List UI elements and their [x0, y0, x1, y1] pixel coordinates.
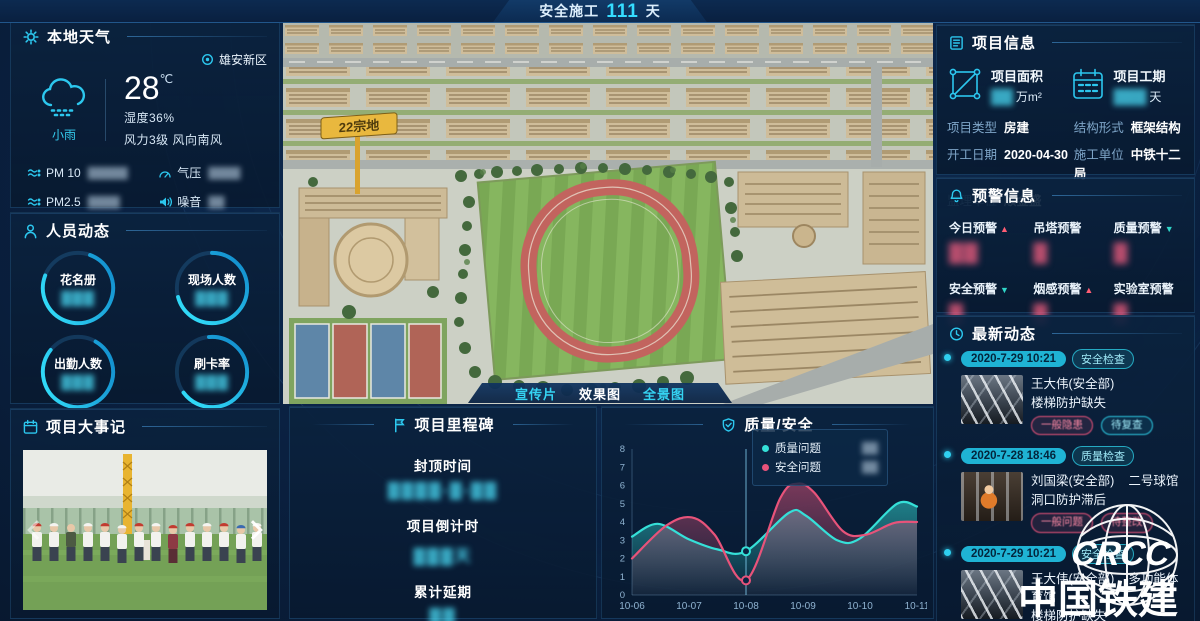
event-photo-carousel[interactable]	[23, 450, 267, 610]
rain-cloud-icon	[38, 77, 90, 119]
news-type-badge: 质量检查	[1072, 446, 1134, 466]
chart-tooltip: 质量问题▓▓ 安全问题▓▓	[752, 429, 888, 486]
trend-arrow-icon: ▼	[1165, 224, 1174, 234]
metric-value: ▓▓▓▓	[208, 167, 240, 179]
svg-text:10-09: 10-09	[790, 601, 816, 612]
panel-project-milestone: 项目里程碑 封顶时间 ▓▓▓▓-▓-▓▓ 项目倒计时 ▓▓▓天 累计延期 ▓▓	[289, 406, 597, 619]
news-issue: 洞口防护滞后	[1031, 491, 1178, 510]
svg-text:3: 3	[620, 535, 625, 546]
header-divider	[126, 230, 267, 231]
issue-level-tag: 一般问题	[1031, 513, 1093, 533]
stat-unit: 万m²	[1016, 90, 1042, 104]
wind: 风力3级 风向南风	[124, 131, 223, 148]
news-person: 刘国梁(安全部)	[1031, 474, 1114, 488]
haze-icon	[27, 167, 41, 179]
ring-label: 现场人数	[188, 271, 236, 288]
panel-quality-safety: 质量/安全 01234567810-0610-0710-0810-0910-10…	[601, 406, 934, 619]
svg-text:10-07: 10-07	[676, 601, 702, 612]
gauge-icon	[158, 167, 172, 179]
metric-label: PM2.5	[46, 195, 81, 209]
milestone-value: ▓▓	[429, 608, 456, 621]
svg-text:1: 1	[620, 572, 625, 583]
metric-label: 气压	[177, 164, 201, 181]
news-date-badge: 2020-7-29 10:21	[961, 546, 1066, 562]
header-line	[312, 424, 374, 425]
stat-ring-attendance: 出勤人数▓▓▓	[38, 332, 118, 412]
news-date-badge: 2020-7-28 18:46	[961, 448, 1066, 464]
news-place: 二号球馆	[1128, 474, 1178, 488]
alert-quality: 质量预警▼▓	[1114, 219, 1190, 264]
location-icon	[201, 53, 214, 66]
news-person: 王大伟(安全部)	[1031, 572, 1114, 586]
svg-text:8: 8	[620, 444, 625, 455]
alert-today: 今日预警▲▓▓	[949, 219, 1033, 264]
safety-days-banner: 安全施工 111 天	[493, 0, 707, 22]
panel-title: 预警信息	[972, 185, 1036, 206]
metric-pm25: PM2.5 ▓▓▓▓	[27, 193, 154, 210]
metric-value: ▓▓▓▓	[88, 196, 120, 208]
weather-metrics: PM 10 ▓▓▓▓▓ 气压 ▓▓▓▓ PM2.5 ▓▓▓▓ 噪音 ▓▓	[27, 164, 269, 210]
panel-title: 本地天气	[47, 26, 111, 47]
crane	[123, 454, 132, 536]
header-divider	[142, 426, 267, 427]
area-icon	[947, 66, 983, 102]
milestone-label: 累计延期	[414, 581, 472, 601]
location-name: 雄安新区	[219, 51, 267, 68]
ring-value: ▓▓▓	[195, 373, 229, 389]
svg-text:7: 7	[620, 462, 625, 473]
clock-icon	[949, 326, 964, 342]
header-line	[624, 424, 703, 425]
svg-text:10-06: 10-06	[619, 601, 645, 612]
field-project-type: 项目类型房建	[947, 117, 1074, 136]
stat-ring-roster: 花名册▓▓▓	[38, 248, 118, 328]
metric-label: 噪音	[177, 193, 201, 210]
metric-value: ▓▓	[208, 196, 224, 208]
bell-icon	[949, 188, 964, 204]
weather-condition: 小雨	[27, 126, 101, 143]
legend-label-quality: 质量问题	[775, 440, 821, 456]
weather-current: 小雨 28℃ 湿度36% 风力3级 风向南风	[27, 72, 273, 148]
temperature-value: 28	[124, 70, 160, 106]
alert-value: ▓	[1033, 242, 1113, 264]
stat-ring-onsite: 现场人数▓▓▓	[172, 248, 252, 328]
tab-promo-video[interactable]: 宣传片	[515, 384, 557, 403]
panel-personnel: 人员动态 花名册▓▓▓ 现场人数▓▓▓ 出勤人数▓▓▓ 刷卡率▓▓▓	[10, 212, 280, 404]
stat-ring-swipe-rate: 刷卡率▓▓▓	[172, 332, 252, 412]
header-divider	[1052, 42, 1182, 43]
document-icon	[949, 35, 964, 51]
panel-title: 项目里程碑	[415, 414, 495, 435]
news-date-badge: 2020-7-29 10:21	[961, 351, 1066, 367]
timeline-dot	[944, 549, 951, 556]
haze-icon	[27, 196, 41, 208]
event-photo	[23, 450, 267, 610]
svg-text:4: 4	[620, 517, 625, 528]
news-type-badge: 安全检查	[1072, 349, 1134, 369]
calendar-icon	[23, 419, 38, 435]
safety-days-label: 安全施工	[539, 1, 599, 21]
panel-title: 项目大事记	[46, 416, 126, 437]
alerts-grid: 今日预警▲▓▓ 吊塔预警▓ 质量预警▼▓ 安全预警▼▓ 烟感预警▲▓ 实验室预警…	[949, 219, 1190, 325]
panel-title: 项目信息	[972, 32, 1036, 53]
news-issue: 楼梯防护缺失	[1031, 394, 1153, 413]
flag-icon	[392, 417, 407, 433]
milestone-value: ▓▓▓▓-▓-▓▓	[388, 482, 498, 500]
stat-value: ▓▓▓	[1114, 88, 1147, 105]
distant-buildings	[283, 22, 933, 67]
project-stats: 项目面积 ▓▓万m² 项目工期 ▓▓▓天	[947, 66, 1186, 105]
sports-field	[478, 162, 732, 380]
field-structure: 结构形式框架结构	[1074, 117, 1184, 136]
temperature-unit: ℃	[160, 72, 173, 86]
land-sign-label: 22宗地	[339, 117, 379, 135]
stat-value: ▓▓	[991, 88, 1013, 105]
shield-check-icon	[721, 417, 736, 433]
status-tag: 待复查	[1101, 416, 1153, 436]
header-line	[513, 424, 575, 425]
hazard-level-tag: 一般隐患	[1031, 416, 1093, 436]
speaker-icon	[158, 196, 172, 208]
news-photo	[961, 375, 1023, 424]
ring-value: ▓▓▓	[195, 289, 229, 305]
news-photo	[961, 570, 1023, 619]
timeline-dot	[944, 451, 951, 458]
sun-icon	[23, 29, 39, 45]
legend-dot-safety	[762, 464, 769, 471]
alert-crane: 吊塔预警▓	[1033, 219, 1113, 264]
legend-dot-quality	[762, 445, 769, 452]
ring-value: ▓▓▓	[61, 289, 95, 305]
trend-arrow-icon: ▼	[1000, 285, 1009, 295]
safety-days-unit: 天	[646, 1, 661, 21]
ring-label: 出勤人数	[54, 355, 102, 372]
trend-arrow-icon: ▲	[1084, 285, 1093, 295]
svg-text:6: 6	[620, 481, 625, 492]
milestone-items: 封顶时间 ▓▓▓▓-▓-▓▓ 项目倒计时 ▓▓▓天 累计延期 ▓▓	[290, 440, 596, 621]
legend-label-safety: 安全问题	[775, 459, 821, 475]
divider	[105, 79, 106, 141]
svg-text:10-10: 10-10	[847, 601, 873, 612]
ring-label: 刷卡率	[194, 355, 230, 372]
stat-project-duration: 项目工期 ▓▓▓天	[1070, 66, 1187, 105]
news-issue: 楼梯防护缺失	[1031, 607, 1186, 621]
metric-label: PM 10	[46, 166, 81, 180]
personnel-rings: 花名册▓▓▓ 现场人数▓▓▓ 出勤人数▓▓▓ 刷卡率▓▓▓	[11, 248, 279, 412]
person-icon	[23, 223, 38, 239]
scene-view-tabs: 宣传片 效果图 全景图	[468, 383, 732, 403]
panel-project-info: 项目信息 项目面积 ▓▓万m²	[936, 24, 1195, 175]
svg-text:2: 2	[620, 554, 625, 565]
panel-alerts: 预警信息 今日预警▲▓▓ 吊塔预警▓ 质量预警▼▓ 安全预警▼▓ 烟感预警▲▓ …	[936, 177, 1195, 313]
stat-label: 项目工期	[1114, 66, 1166, 85]
alert-value: ▓	[1114, 242, 1190, 264]
construction-dashboard: 22宗地 宣传片 效果图 全景图 安全施工 111 天 本地天气 雄安新区	[0, 0, 1200, 621]
header-line	[832, 424, 911, 425]
location-indicator: 雄安新区	[201, 51, 267, 68]
news-type-badge: 安全检查	[1072, 544, 1134, 564]
svg-text:10-08: 10-08	[733, 601, 759, 612]
svg-text:0: 0	[620, 590, 625, 601]
basketball-courts	[289, 318, 447, 404]
milestone-value: ▓▓▓天	[414, 542, 473, 566]
timeline-dot	[944, 354, 951, 361]
svg-text:5: 5	[620, 499, 625, 510]
status-tag: 待整改	[1101, 513, 1153, 533]
svg-text:10-11: 10-11	[905, 601, 927, 612]
tab-panorama[interactable]: 全景图	[643, 384, 685, 403]
alert-value: ▓▓	[949, 242, 1033, 264]
header-divider	[1052, 195, 1182, 196]
panel-title: 最新动态	[972, 323, 1036, 344]
panel-project-events: 项目大事记	[10, 408, 280, 619]
aerial-render-view[interactable]: 22宗地	[283, 22, 933, 404]
calendar-icon	[1070, 66, 1106, 102]
ring-label: 花名册	[60, 271, 96, 288]
stat-project-area: 项目面积 ▓▓万m²	[947, 66, 1064, 105]
milestone-label: 封顶时间	[414, 455, 472, 475]
news-item[interactable]: 2020-7-29 10:21 安全检查 王大伟(安全部)多功能体育馆 楼梯防护…	[937, 544, 1194, 621]
trend-arrow-icon: ▲	[1000, 224, 1009, 234]
news-item[interactable]: 2020-7-28 18:46 质量检查 刘国梁(安全部)二号球馆 洞口防护滞后…	[937, 446, 1194, 543]
header-divider	[127, 36, 267, 37]
milestone-label: 项目倒计时	[407, 515, 480, 535]
metric-pressure: 气压 ▓▓▓▓	[158, 164, 269, 181]
metric-value: ▓▓▓▓▓	[88, 167, 128, 179]
header-divider	[1052, 333, 1182, 334]
news-item[interactable]: 2020-7-29 10:21 安全检查 王大伟(安全部) 楼梯防护缺失 一般隐…	[937, 349, 1194, 446]
panel-local-weather: 本地天气 雄安新区 小雨 28℃ 湿度36% 风力3级 风向南风	[10, 18, 280, 208]
metric-noise: 噪音 ▓▓	[158, 193, 269, 210]
tooltip-value: ▓▓	[862, 442, 878, 454]
metric-pm10: PM 10 ▓▓▓▓▓	[27, 164, 154, 181]
news-photo	[961, 472, 1023, 521]
stat-label: 项目面积	[991, 66, 1043, 85]
panel-title: 人员动态	[46, 220, 110, 241]
ring-value: ▓▓▓	[61, 373, 95, 389]
humidity: 湿度36%	[124, 109, 223, 126]
tooltip-value: ▓▓	[862, 461, 878, 473]
safety-days-value: 111	[606, 2, 639, 21]
stat-unit: 天	[1149, 90, 1161, 104]
news-person: 王大伟(安全部)	[1031, 377, 1114, 391]
panel-latest-updates: 最新动态 2020-7-29 10:21 安全检查 王大伟(安全部) 楼梯防护缺…	[936, 315, 1195, 621]
tab-render-view[interactable]: 效果图	[579, 384, 621, 403]
top-header: 安全施工 111 天	[0, 0, 1200, 23]
